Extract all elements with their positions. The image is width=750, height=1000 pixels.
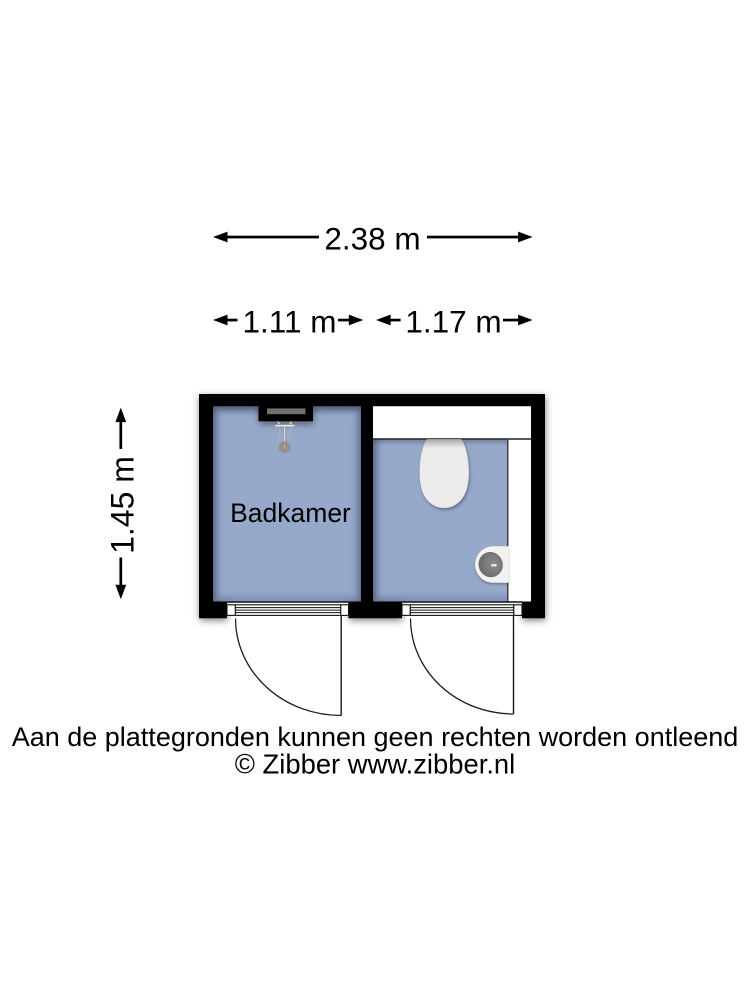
- svg-text:Aan de plattegronden kunnen ge: Aan de plattegronden kunnen geen rechten…: [12, 722, 739, 752]
- svg-text:Badkamer: Badkamer: [230, 498, 351, 528]
- svg-text:2.38 m: 2.38 m: [324, 220, 420, 256]
- svg-text:1.45 m: 1.45 m: [105, 456, 141, 554]
- svg-text:© Zibber www.zibber.nl: © Zibber www.zibber.nl: [235, 749, 516, 780]
- svg-text:1.11 m: 1.11 m: [243, 303, 337, 339]
- svg-text:1.17 m: 1.17 m: [405, 303, 501, 339]
